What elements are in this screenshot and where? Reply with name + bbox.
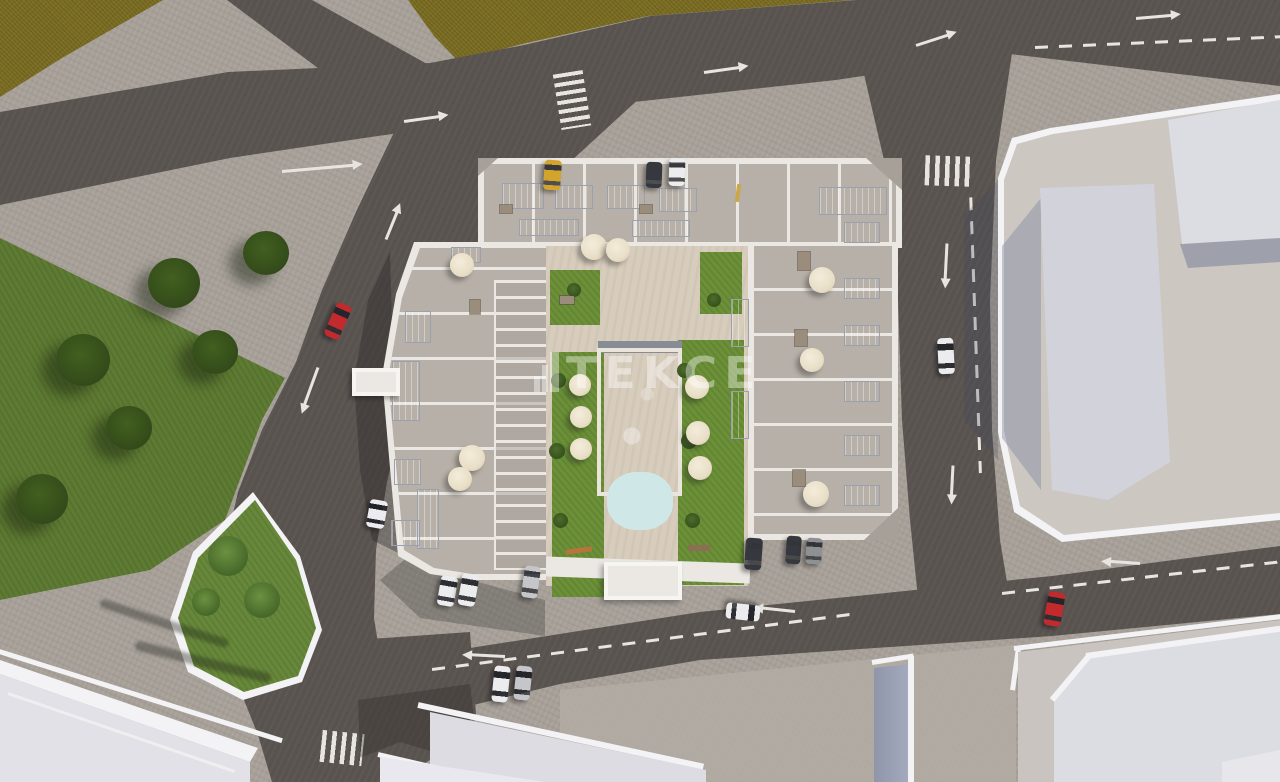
- terrace-table: [793, 470, 805, 486]
- zebra-crossing: [319, 730, 364, 766]
- shrub: [549, 443, 565, 459]
- park-tree: [56, 334, 110, 386]
- park-tree: [16, 474, 68, 524]
- solar-panel-array: [418, 490, 438, 548]
- solar-panel-array: [608, 186, 644, 208]
- palm-tree: [208, 536, 248, 576]
- solar-panel-array: [395, 460, 420, 484]
- sun-umbrella: [570, 406, 592, 428]
- solar-panel-array: [845, 279, 879, 298]
- sun-umbrella: [570, 438, 592, 460]
- tekce-watermark: TEKCE: [534, 352, 763, 394]
- shrub: [685, 513, 700, 528]
- sun-umbrella: [686, 421, 710, 445]
- sun-umbrella: [606, 238, 630, 262]
- park-tree: [106, 406, 152, 450]
- solar-panel-array: [732, 392, 748, 438]
- palm-tree: [244, 582, 280, 618]
- terrace-table: [798, 252, 810, 270]
- car-gray: [805, 537, 823, 564]
- shrub: [567, 283, 581, 297]
- car-dark: [646, 162, 663, 189]
- dark-prism-curb: [908, 656, 914, 782]
- solar-panel-array: [845, 486, 879, 505]
- car-dark: [785, 536, 802, 565]
- park-tree: [148, 258, 200, 308]
- sun-umbrella: [800, 348, 824, 372]
- dark-prism-face: [874, 664, 910, 782]
- stairwell-band: [494, 280, 548, 570]
- car-white: [491, 665, 511, 702]
- sun-umbrella: [450, 253, 474, 277]
- shrub: [707, 293, 721, 307]
- swimming-pool-shallow-end: [607, 472, 673, 530]
- car-silver: [513, 665, 532, 700]
- zebra-crossing: [924, 155, 971, 187]
- car-white: [937, 338, 955, 375]
- palm-tree: [192, 588, 220, 616]
- solar-panel-array: [392, 521, 419, 545]
- solar-panel-array: [406, 312, 430, 342]
- terrace-table: [640, 205, 652, 213]
- car-white-driving: [725, 602, 760, 621]
- solar-panel-array: [845, 326, 879, 345]
- sun-umbrella: [809, 267, 835, 293]
- road-arrow-left: [1110, 560, 1140, 565]
- car-dark: [744, 537, 763, 570]
- shrub: [553, 513, 568, 528]
- sun-umbrella: [803, 481, 829, 507]
- pool-house-block: [604, 562, 682, 600]
- solar-panel-array: [845, 436, 879, 455]
- solar-panel-array: [732, 300, 748, 346]
- terrace-table: [500, 205, 512, 213]
- park-tree: [243, 231, 289, 275]
- solar-panel-array: [520, 220, 578, 235]
- courtyard-lawn-top: [550, 270, 600, 325]
- car-silver: [521, 565, 541, 599]
- terrace-table: [795, 330, 807, 346]
- solar-panel-array: [845, 382, 879, 401]
- solar-panel-array: [556, 186, 592, 208]
- terrace-table: [560, 296, 574, 304]
- entrance-canopy: [352, 368, 400, 396]
- aerial-render-scene: TEKCE: [0, 0, 1280, 782]
- solar-panel-array: [660, 189, 696, 211]
- solar-panel-array: [820, 188, 886, 214]
- solar-panel-array: [633, 221, 689, 236]
- road-arrow-right: [282, 164, 354, 173]
- park-tree: [192, 330, 238, 374]
- solar-panel-array: [845, 223, 879, 242]
- car-white: [669, 158, 686, 187]
- tekce-logo-icon: [534, 352, 559, 394]
- sun-umbrella: [581, 234, 607, 260]
- terrace-table: [470, 300, 480, 314]
- playground-equipment: [688, 545, 710, 551]
- watermark-text: TEKCE: [566, 353, 763, 393]
- sun-umbrella: [448, 467, 472, 491]
- sun-umbrella: [688, 456, 712, 480]
- car-yellow: [543, 159, 562, 190]
